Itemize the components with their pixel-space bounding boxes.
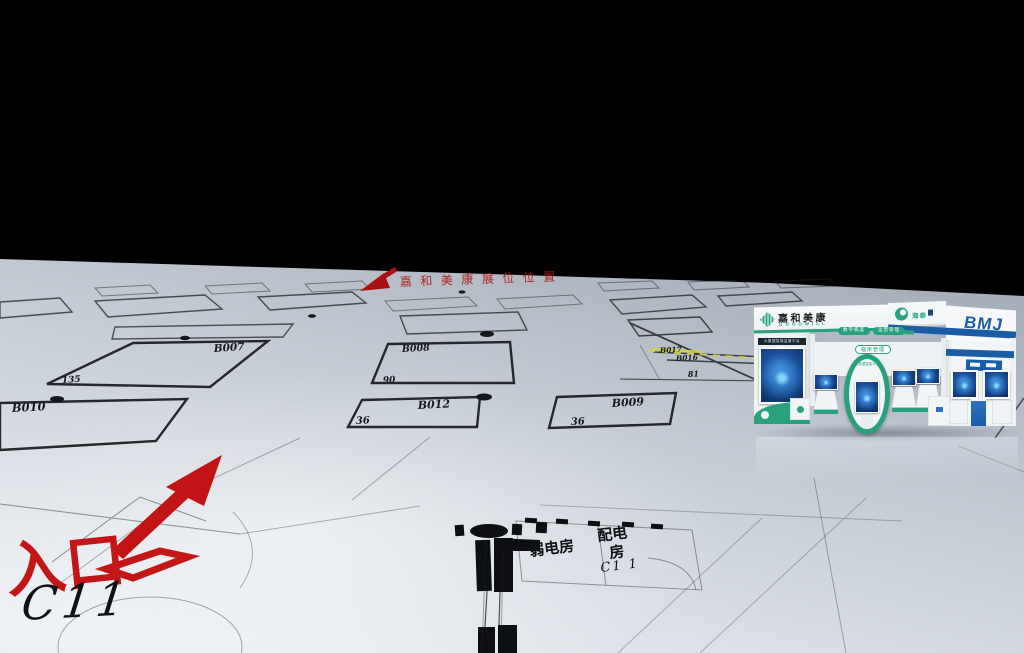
label-b010: B010 bbox=[10, 399, 45, 415]
right-cabinet bbox=[992, 400, 1012, 424]
cabinet-logo-icon bbox=[797, 406, 804, 413]
left-wall-title: 大数据智能监管平台 bbox=[758, 338, 806, 345]
power-room-line1: 配电 bbox=[596, 523, 628, 545]
label-90: 90 bbox=[383, 375, 397, 386]
blue-pedestal bbox=[971, 399, 986, 426]
cube-blue-tag bbox=[936, 407, 943, 412]
oval-arch-label: 大数据智能平台 bbox=[849, 362, 885, 367]
label-36a: 36 bbox=[356, 415, 371, 427]
kiosk-screen bbox=[814, 374, 838, 390]
brand-name-en: GOODWILL bbox=[779, 321, 828, 327]
booth-floor-reflection bbox=[756, 437, 1018, 495]
hanging-sign-3: 临床管理 bbox=[855, 345, 891, 354]
goodwill-booth-model: 嘉和美康 GOODWILL 海泰 BMJ 大数据智能监管平台 数字病案 运营管理… bbox=[752, 298, 1020, 440]
label-81: 81 bbox=[688, 368, 700, 379]
white-cube-table bbox=[928, 396, 950, 426]
label-b007: B007 bbox=[212, 341, 245, 355]
kiosk bbox=[814, 374, 838, 416]
partner-tag-icon bbox=[928, 309, 933, 315]
sign-chip bbox=[970, 363, 980, 367]
label-b009: B009 bbox=[610, 395, 644, 410]
label-b008: B008 bbox=[401, 343, 431, 356]
canopy-right: BMJ bbox=[946, 306, 1016, 345]
label-36b: 36 bbox=[571, 416, 586, 428]
kiosk-screen bbox=[892, 370, 916, 386]
kiosk-base bbox=[892, 408, 916, 412]
kiosk-screen bbox=[916, 368, 940, 384]
kiosk-body bbox=[814, 391, 838, 409]
label-b016: B016 bbox=[675, 353, 699, 363]
label-b012: B012 bbox=[416, 397, 450, 412]
left-cabinet bbox=[790, 398, 810, 420]
swoosh-logo-icon bbox=[761, 411, 769, 419]
oval-arch: 大数据智能平台 bbox=[844, 354, 890, 434]
hanging-sign-2: 运营管理 bbox=[873, 327, 905, 335]
partner-name: 海泰 bbox=[912, 310, 927, 321]
oval-kiosk-base bbox=[861, 415, 873, 429]
right-wall-screen-1 bbox=[951, 370, 978, 399]
left-wall-screen bbox=[759, 347, 805, 404]
kiosk-base bbox=[814, 410, 838, 414]
exhibition-render: 入口 C11 嘉和美康展位位置 B007 135 B010 B008 90 B0… bbox=[0, 0, 1024, 653]
kiosk-body bbox=[892, 387, 916, 407]
right-wall-screen-2 bbox=[983, 370, 1010, 399]
oval-screen bbox=[855, 381, 879, 413]
right-cabinet bbox=[948, 400, 968, 424]
kiosk bbox=[892, 370, 916, 414]
hall-code-label: C11 bbox=[19, 571, 134, 631]
sign-chip bbox=[986, 363, 996, 367]
partner-logo-icon bbox=[895, 307, 908, 320]
label-135: 135 bbox=[62, 375, 81, 386]
canopy-mid: 海泰 bbox=[888, 301, 946, 327]
hanging-sign-1: 数字病案 bbox=[838, 327, 870, 335]
goodwill-logo-icon bbox=[760, 312, 776, 328]
